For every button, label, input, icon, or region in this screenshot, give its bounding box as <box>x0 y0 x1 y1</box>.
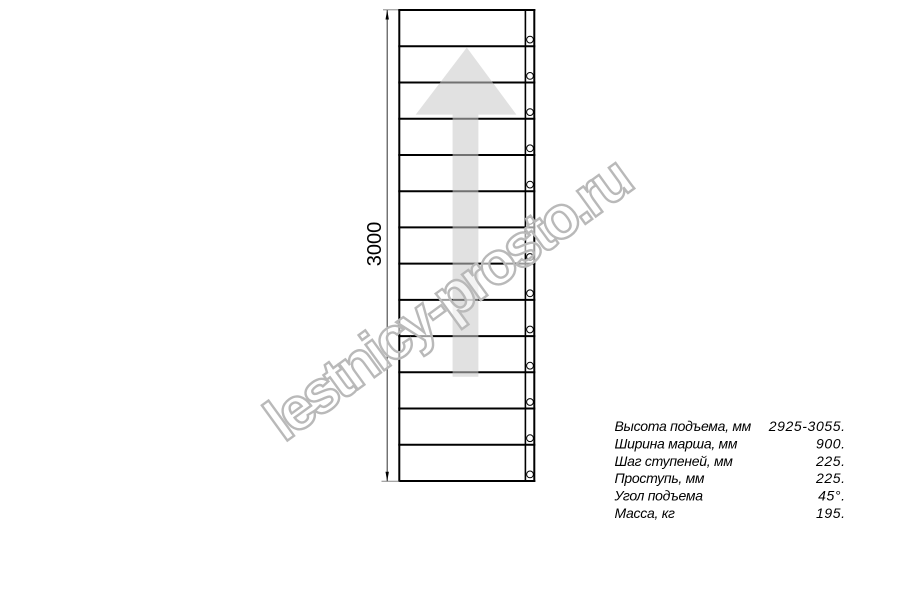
svg-text:Проступь, мм: Проступь, мм <box>615 470 705 486</box>
svg-text:900.: 900. <box>816 436 846 452</box>
svg-text:Угол подъема: Угол подъема <box>614 488 704 504</box>
svg-text:225.: 225. <box>815 453 846 469</box>
svg-text:Высота подъема, мм: Высота подъема, мм <box>615 418 752 434</box>
svg-text:225.: 225. <box>815 470 846 486</box>
svg-text:Масса, кг: Масса, кг <box>615 505 676 521</box>
svg-text:45°.: 45°. <box>818 488 845 504</box>
svg-text:195.: 195. <box>816 505 846 521</box>
svg-text:2925-3055.: 2925-3055. <box>768 418 846 434</box>
svg-text:Шаг ступеней, мм: Шаг ступеней, мм <box>615 453 734 469</box>
svg-text:3000: 3000 <box>364 222 386 267</box>
svg-text:Ширина марша, мм: Ширина марша, мм <box>615 436 738 452</box>
